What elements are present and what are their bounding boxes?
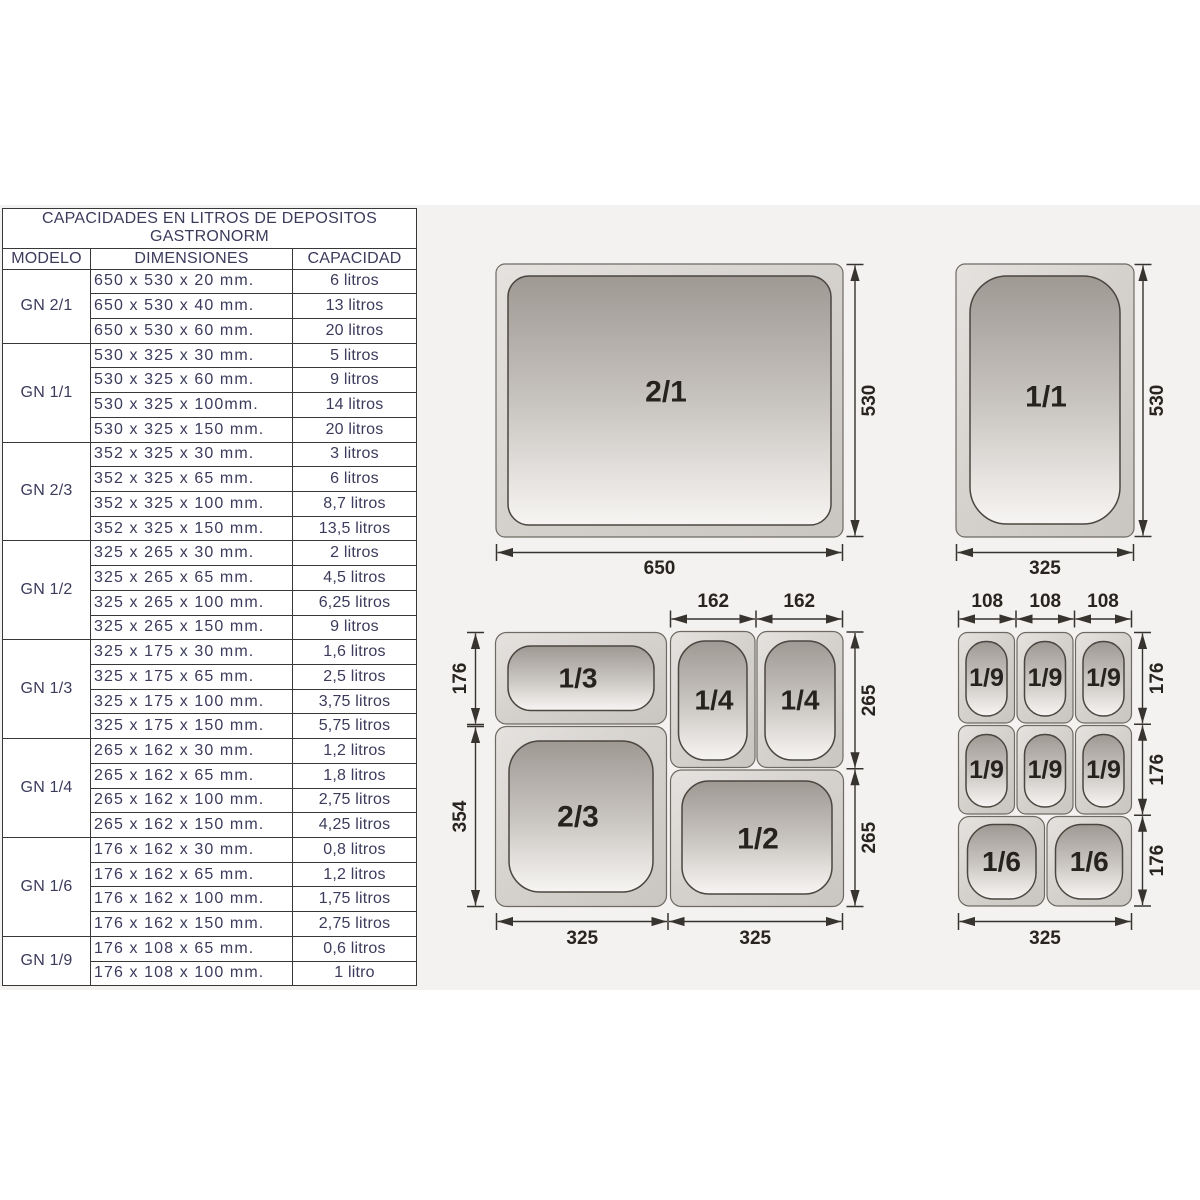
svg-text:354: 354	[450, 800, 471, 832]
svg-text:162: 162	[697, 591, 729, 612]
svg-text:325: 325	[739, 928, 771, 949]
svg-text:108: 108	[1087, 591, 1119, 612]
svg-text:1/9: 1/9	[969, 756, 1004, 784]
svg-text:108: 108	[1029, 591, 1061, 612]
svg-text:1/9: 1/9	[1028, 756, 1063, 784]
svg-text:1/6: 1/6	[982, 846, 1021, 877]
svg-text:530: 530	[859, 385, 880, 417]
svg-text:2/3: 2/3	[557, 801, 599, 834]
svg-text:176: 176	[1147, 845, 1168, 877]
svg-text:1/3: 1/3	[559, 663, 598, 694]
svg-text:265: 265	[859, 684, 880, 716]
svg-text:1/4: 1/4	[695, 685, 734, 716]
svg-text:176: 176	[450, 663, 471, 695]
svg-text:1/9: 1/9	[1086, 664, 1121, 692]
svg-text:176: 176	[1147, 754, 1168, 786]
svg-text:1/9: 1/9	[969, 664, 1004, 692]
svg-text:325: 325	[1029, 558, 1061, 579]
svg-text:1/6: 1/6	[1070, 846, 1109, 877]
svg-text:1/1: 1/1	[1025, 381, 1067, 414]
svg-text:176: 176	[1147, 663, 1168, 695]
svg-text:162: 162	[783, 591, 815, 612]
svg-text:1/2: 1/2	[737, 823, 779, 856]
svg-text:325: 325	[1029, 928, 1061, 949]
svg-text:1/4: 1/4	[781, 685, 820, 716]
svg-text:2/1: 2/1	[645, 376, 687, 409]
svg-text:530: 530	[1147, 385, 1168, 417]
svg-text:265: 265	[859, 821, 880, 853]
svg-text:1/9: 1/9	[1028, 664, 1063, 692]
svg-text:1/9: 1/9	[1086, 756, 1121, 784]
svg-text:108: 108	[971, 591, 1003, 612]
svg-text:650: 650	[644, 558, 676, 579]
svg-text:325: 325	[566, 928, 598, 949]
